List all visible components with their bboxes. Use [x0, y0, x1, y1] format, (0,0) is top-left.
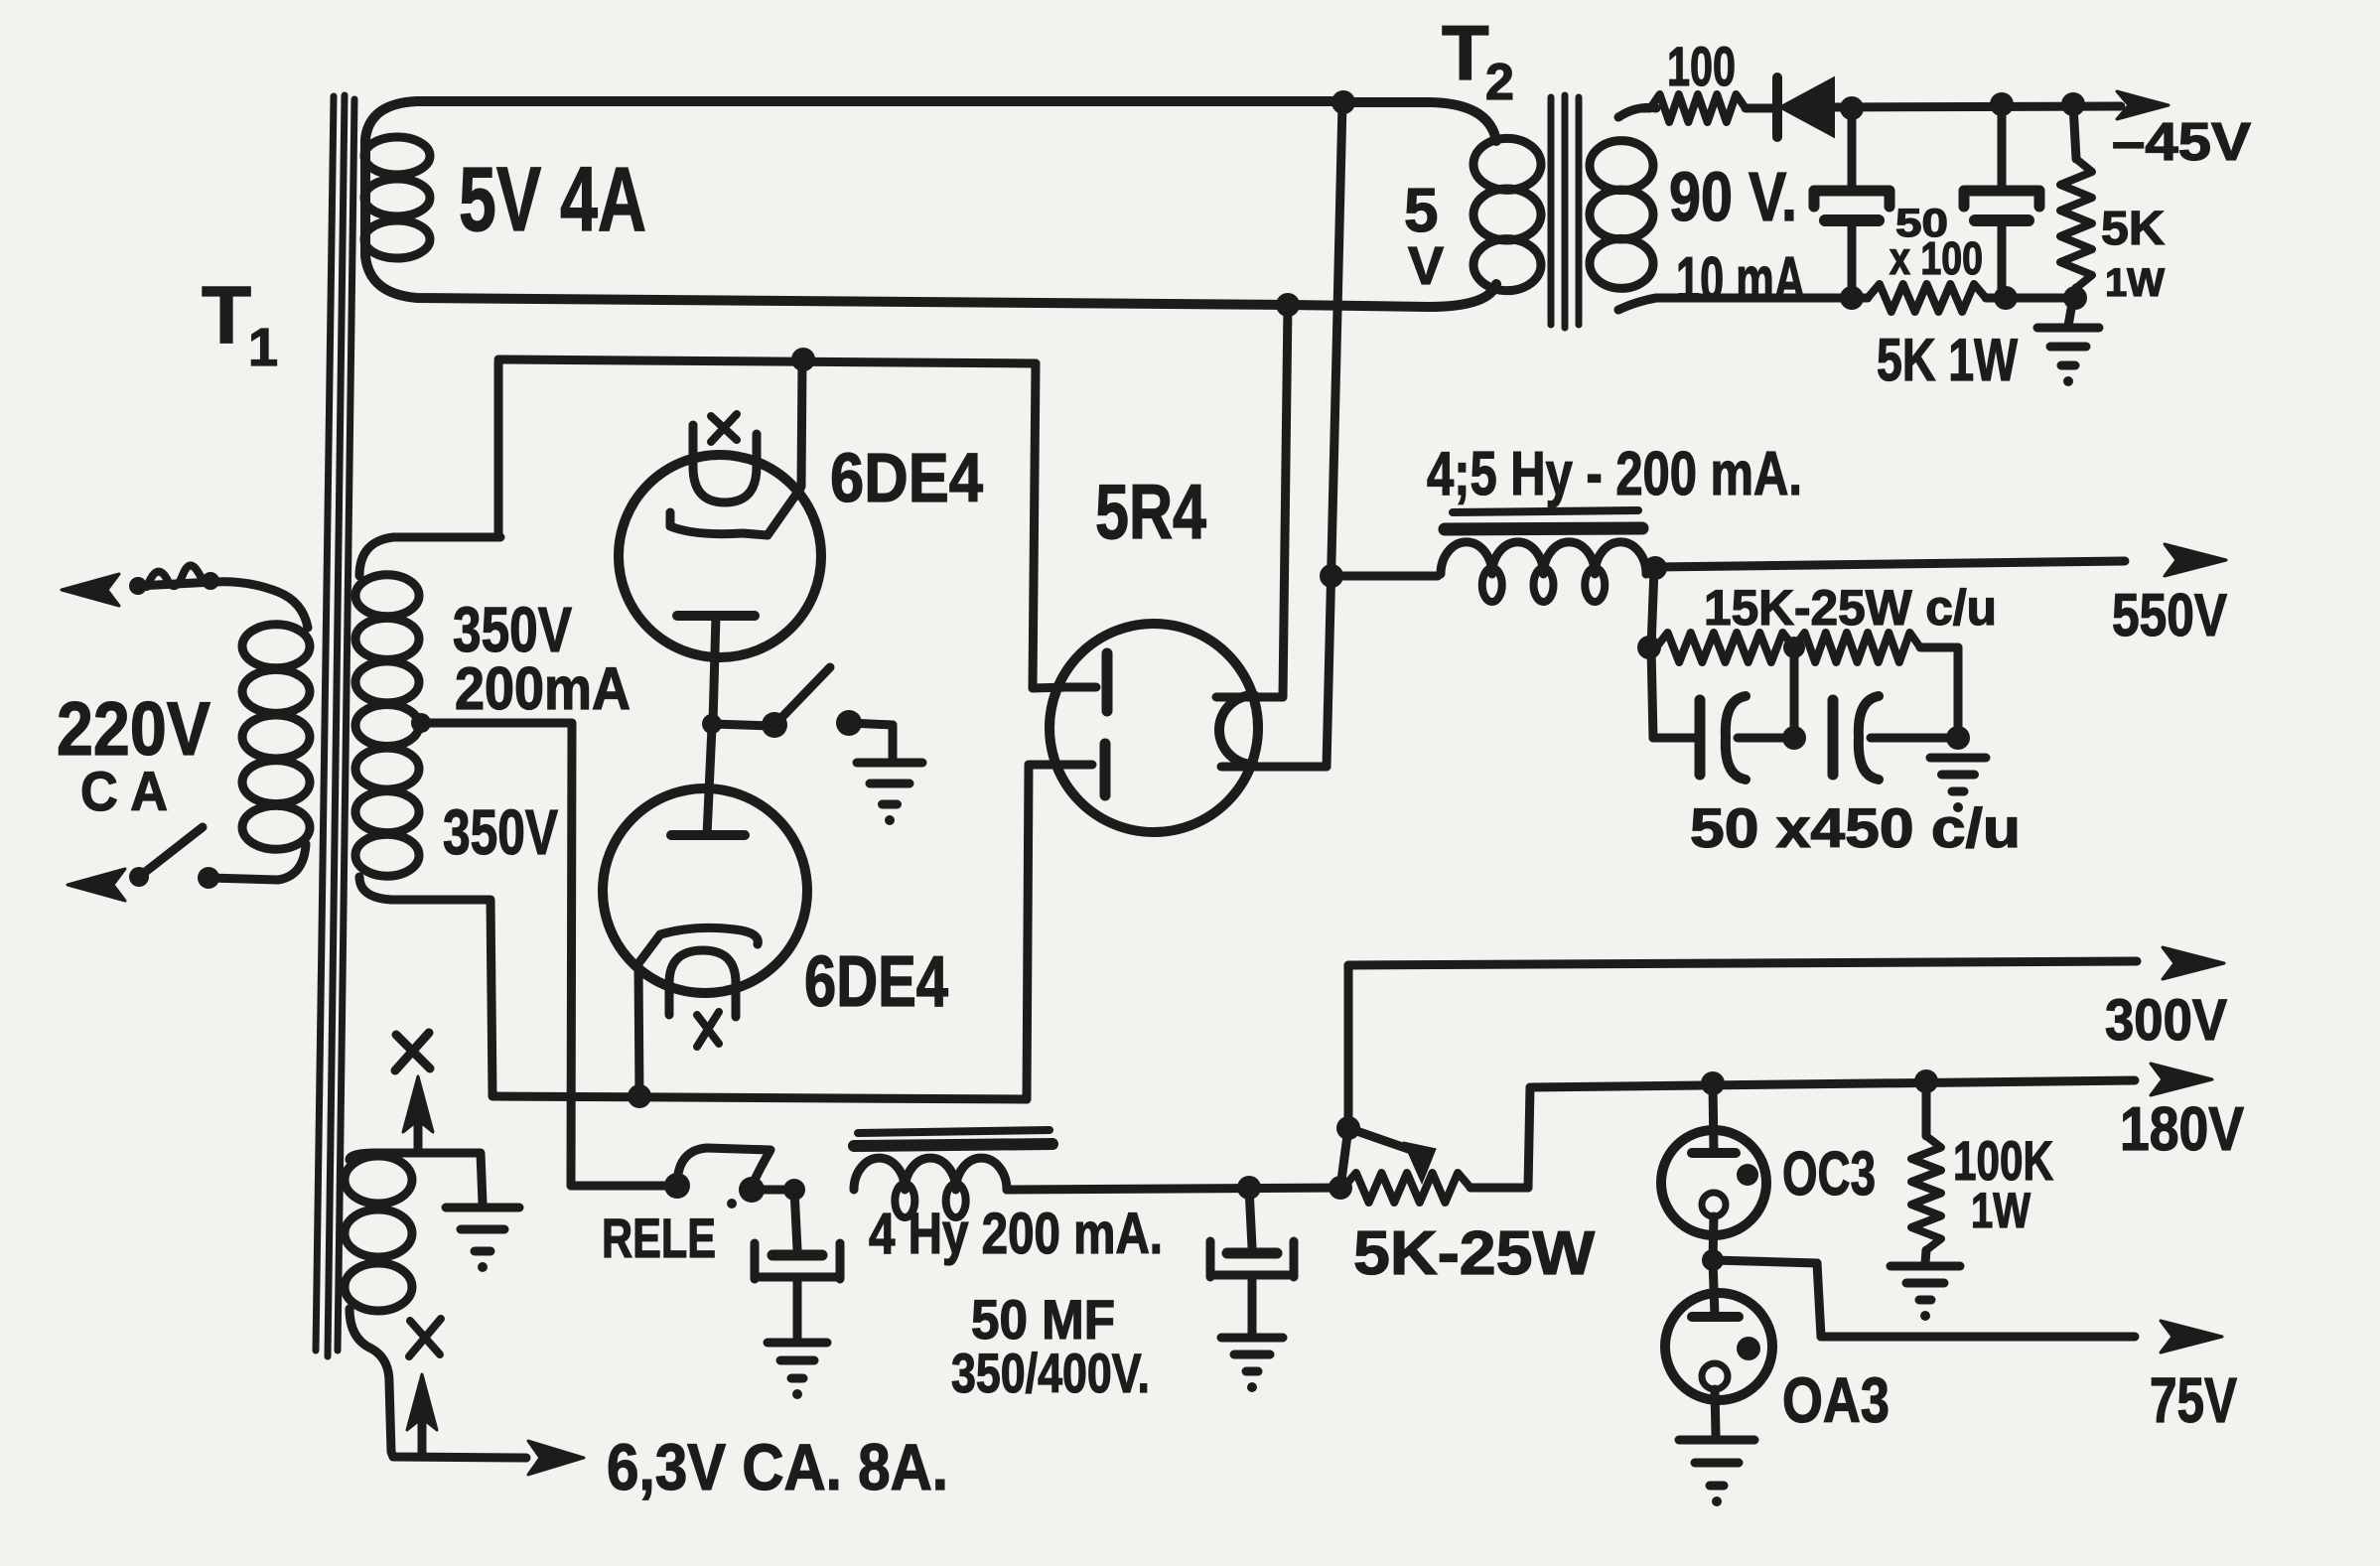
svg-text:4;5 Hy - 200 mA.: 4;5 Hy - 200 mA. [1427, 440, 1802, 508]
svg-text:1: 1 [248, 318, 278, 377]
svg-text:–45V: –45V [2112, 112, 2251, 172]
svg-text:5K-25W: 5K-25W [1353, 1219, 1596, 1288]
svg-text:5K: 5K [2101, 203, 2165, 255]
svg-text:2: 2 [1485, 54, 1514, 111]
svg-text:5R4: 5R4 [1095, 468, 1206, 555]
svg-text:180V: 180V [2120, 1095, 2244, 1164]
svg-text:OC3: OC3 [1782, 1140, 1876, 1209]
svg-text:T: T [202, 270, 251, 360]
svg-text:5K 1W: 5K 1W [1877, 327, 2018, 393]
svg-text:V: V [1408, 236, 1444, 296]
svg-text:6DE4: 6DE4 [830, 439, 983, 516]
svg-text:50 x450 c/u: 50 x450 c/u [1690, 796, 2021, 859]
svg-text:10 mA: 10 mA [1676, 245, 1805, 314]
svg-text:350/400V.: 350/400V. [951, 1342, 1150, 1404]
svg-text:4 Hy 200 mA.: 4 Hy 200 mA. [869, 1202, 1163, 1266]
svg-text:5V 4A: 5V 4A [459, 149, 646, 250]
svg-text:550V: 550V [2112, 582, 2227, 648]
svg-text:300V: 300V [2105, 988, 2227, 1053]
svg-text:x 100: x 100 [1890, 232, 1983, 284]
svg-text:1W: 1W [2105, 261, 2165, 305]
svg-text:6DE4: 6DE4 [804, 942, 948, 1022]
svg-text:200mA: 200mA [455, 655, 630, 722]
svg-text:T: T [1442, 9, 1489, 96]
svg-text:1W: 1W [1971, 1183, 2031, 1238]
svg-text:75V: 75V [2150, 1364, 2237, 1436]
svg-text:RELE: RELE [602, 1207, 716, 1269]
svg-text:5: 5 [1404, 177, 1438, 245]
svg-text:OA3: OA3 [1782, 1364, 1890, 1436]
svg-text:6,3V CA. 8A.: 6,3V CA. 8A. [607, 1430, 948, 1503]
svg-text:15K-25W c/u: 15K-25W c/u [1704, 580, 1997, 636]
svg-text:90 V.: 90 V. [1669, 158, 1797, 235]
svg-text:100: 100 [1667, 35, 1736, 97]
svg-text:C A: C A [80, 760, 168, 822]
svg-text:350V: 350V [443, 796, 558, 868]
